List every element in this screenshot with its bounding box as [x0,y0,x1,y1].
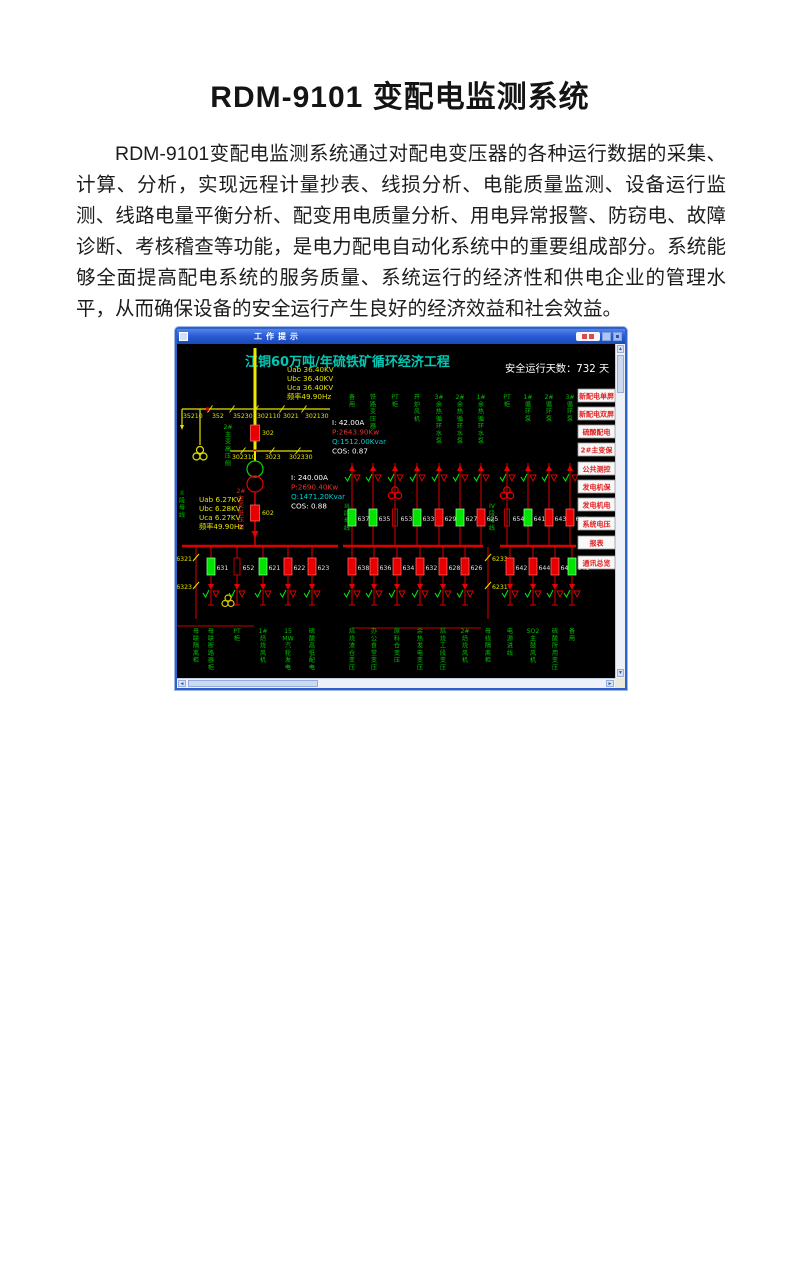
breaker-626[interactable] [461,558,469,575]
feeder-name-label: 焙 [462,634,468,642]
feeder-name-label: 1# [523,394,532,401]
status-check [366,474,372,481]
feeder-name-label: 联 [208,634,214,642]
arrow-up [546,465,552,471]
pt-symbol [388,492,394,498]
vscroll-thumb[interactable] [617,355,624,393]
feeder-name-label: 开 [414,394,420,401]
feeder-name-label: 3# [565,394,574,401]
hv-side-label: 侧 [225,460,231,468]
feeder-name-label: 余 [457,400,464,408]
lv-voltage: Uab 6.27KV [199,495,241,504]
switch-label: 302110 [257,413,281,420]
arrow-down [507,584,513,590]
status-check [474,474,480,481]
scada-diagram: 江铜60万吨/年硫铁矿循环经济工程安全运行天数：732 天35210352352… [177,344,615,678]
pt-symbol [200,453,207,460]
status-check [366,590,372,597]
hv-side-label: 主 [225,430,231,438]
feeder-name-label: 泵 [546,416,552,423]
status-check [457,590,463,597]
contact-symbol [512,591,518,597]
nav-button-label: 报表 [590,539,605,548]
status-check [345,474,351,481]
feeder-name-label: 压 [552,665,558,672]
feeder-name-label: 环 [546,409,552,416]
breaker-646[interactable] [551,558,559,575]
status-check [500,474,506,481]
switch-label: 35230 [233,413,253,420]
feeder-name-label: 源 [507,634,513,642]
feeder-name-label: 办 [371,627,377,635]
hv-side-label: 高 [225,445,231,453]
feeder-name-label: 风 [462,650,468,657]
arrow-up [414,465,420,471]
feeder-name-label: 循 [546,400,552,408]
safe-days-counter: 安全运行天数：732 天 [505,362,609,375]
feeder-name-label: 仓 [349,649,355,657]
feeder-name-label: 料 [394,634,400,642]
status-check [502,590,508,597]
contact-symbol [290,591,296,597]
feeder-name-label: 发 [285,656,291,664]
breaker-632[interactable] [416,558,424,575]
feeder-name-label: 备 [569,627,576,635]
scroll-up-button[interactable]: ▲ [617,345,624,353]
breaker-num: 302 [262,430,274,437]
feeder-name-label: 仓 [394,642,400,650]
pt-symbol [395,492,401,498]
feeder-name-label: 用 [552,650,558,657]
switch-label: 3023 [265,454,281,461]
arrow-down [260,584,266,590]
breaker-629[interactable] [435,509,443,526]
breaker-644[interactable] [529,558,537,575]
titlebar-menu-button[interactable] [576,332,600,341]
contact-symbol [441,475,447,481]
feeder-name-label: 柜 [234,634,240,642]
breaker-302[interactable] [251,425,260,441]
breaker-num: 637 [358,516,370,523]
arrow-up [349,465,355,471]
feeder-name-label: 压 [440,665,446,672]
feeder-name-label: 酸 [309,634,315,642]
feeder-name-label: 热 [457,408,464,416]
feeder-name-label: 风 [530,650,536,657]
document-title: RDM-9101 变配电监测系统 [0,72,800,116]
breaker-642[interactable] [506,558,514,575]
switch-label: 302310 [232,454,256,461]
nav-button-label: 硫酸配电 [583,428,611,437]
feeder-name-label: 配 [309,657,315,664]
arrow-down [552,584,558,590]
hv-side-label: 变 [225,438,231,446]
feeder-name-label: 水 [457,430,464,438]
feeder-name-label: 变 [370,408,376,416]
status-check [388,474,394,481]
breaker-638[interactable] [348,558,356,575]
breaker-621[interactable] [259,558,267,575]
status-check [521,474,527,481]
lv-measurement: I: 240.00A [291,473,328,482]
breaker-631[interactable] [207,558,215,575]
feeder-name-label: 所 [552,642,558,650]
nav-button-label: 发电机电 [582,501,611,510]
status-check [563,474,569,481]
breaker-627[interactable] [456,509,464,526]
feeder-name-label: 母 [193,628,199,635]
status-check [412,590,418,597]
feeder-name-label: 环 [478,423,484,430]
status-check [432,474,438,481]
breaker-633[interactable] [413,509,421,526]
feeder-name-label: 热 [436,408,443,416]
feeder-name-label: 烧 [440,634,446,642]
breaker-634[interactable] [393,558,401,575]
document-paragraph: RDM-9101变配电监测系统通过对配电变压器的各种运行数据的采集、计算、分析，… [76,139,726,325]
feeder-name-label: 电 [417,649,423,657]
feeder-name-label: 变 [417,656,423,664]
feeder-name-label: 硫 [552,627,558,635]
arrow-down [569,584,575,590]
status-check [344,590,350,597]
breaker-636[interactable] [370,558,378,575]
arrow-up [436,465,442,471]
status-check [203,590,209,597]
close-button[interactable] [613,332,622,341]
status-check [453,474,459,481]
contact-symbol [551,475,557,481]
feeder-name-label: 环 [525,409,531,416]
status-check [410,474,416,481]
feeder-name-label: 主 [530,634,536,642]
window-icon[interactable] [179,332,188,341]
feeder-name-label: 发 [417,642,423,650]
feeder-name-label: 机 [260,656,267,664]
lv-measurement: Q:1471.20Kvar [291,492,345,501]
bus-name-label: IV [489,503,496,510]
breaker-num: 633 [423,516,435,523]
hv-measurement: COS: 0.87 [332,447,368,456]
bus-name-label: 段 [179,496,185,504]
feeder-name-label: SO2 [527,628,540,635]
lv-measurement: COS: 0.88 [291,502,327,511]
feeder-name-label: 进 [507,642,513,650]
breaker-num: 627 [466,516,478,523]
breaker-num: 632 [426,565,438,572]
contact-symbol [375,475,381,481]
breaker-num: 641 [534,516,546,523]
breaker-637[interactable] [348,509,356,526]
nav-button-label: 系统电压 [583,520,611,529]
feeder-name-label: 压 [370,416,376,423]
feeder-name-label: 联 [193,634,199,642]
feeder-name-label: 断 [208,642,214,650]
contact-symbol [376,591,382,597]
breaker-643[interactable] [545,509,553,526]
status-check [304,590,310,597]
feeder-name-label: 环 [567,409,573,416]
scroll-left-button[interactable]: ◄ [178,680,186,687]
feeder-name-label: 压 [371,665,377,672]
feeder-name-label: 泵 [525,416,531,423]
hv-voltage: Uab 36.40KV [287,365,334,374]
scada-client-area: 江铜60万吨/年硫铁矿循环经济工程安全运行天数：732 天35210352352… [177,344,615,678]
disconnect-label: 6321 [177,556,192,563]
bus-name-label: 线 [489,524,495,532]
feeder-name-label: 电 [507,627,513,635]
pt-symbol [507,492,513,498]
feeder-name-label: 1# [258,628,267,635]
arrow-up [392,465,398,471]
arrow [252,531,259,538]
arrow-up [504,465,510,471]
feeder-name-label: PT [503,394,511,401]
breaker-num: 636 [380,565,392,572]
feeder-name-label: 压 [349,665,355,672]
contact-symbol [535,591,541,597]
hv-measurement: I: 42.00A [332,418,364,427]
hscroll-thumb[interactable] [188,680,318,687]
feeder-name-label: 炉 [414,400,420,408]
breaker-622[interactable] [284,558,292,575]
arrow-down [440,584,446,590]
breaker-num: 602 [262,510,274,517]
feeder-name-label: 机 [462,656,469,664]
contact-symbol [397,475,403,481]
breaker-num: 623 [318,565,330,572]
lv-voltage: 频率49.90Hz [199,522,243,531]
lv-measurement: P:2690.40Kw [291,483,338,492]
arrow-down [349,584,355,590]
hv-voltage: Ubc 36.40KV [287,374,333,383]
feeder-name-label: 烧 [462,642,468,650]
contact-symbol [530,475,536,481]
feeder-name-label: MW [282,635,293,642]
contact-symbol [574,591,580,597]
breaker-648[interactable] [568,558,576,575]
contact-symbol [462,475,468,481]
nav-button-label: 发电机保 [582,483,612,492]
switch-label: 302330 [289,454,313,461]
arrow-down [394,584,400,590]
feeder-name-label: 段 [440,649,446,657]
nav-button-label: 新配电双屏 [579,410,614,419]
feeder-name-label: 母 [208,628,214,635]
pt-symbol [500,492,506,498]
feeder-name-label: 电 [285,664,291,672]
feeder-name-label: 路 [208,649,215,657]
disconnect-label: 6233 [492,556,508,563]
contact-symbol [265,591,271,597]
bus-name-label: II [180,490,184,497]
feeder-name-label: 热 [417,634,424,642]
breaker-635[interactable] [369,509,377,526]
arrow-down [417,584,423,590]
disconnect-label: 6231 [492,584,508,591]
status-check [389,590,395,597]
breaker-641[interactable] [524,509,532,526]
feeder-name-label: 原 [394,628,400,635]
pt-symbol [228,601,234,607]
feeder-name-label: 高 [309,642,315,650]
feeder-name-label: 变 [552,656,558,664]
breaker-num: 621 [269,565,281,572]
feeder-name-label: 焙 [440,627,446,635]
feeder-name-label: 变 [440,656,446,664]
feeder-name-label: 风 [260,650,266,657]
breaker-623[interactable] [308,558,316,575]
feeder-name-label: 电 [309,664,315,672]
pt-symbol [222,601,228,607]
arrow-up [457,465,463,471]
breaker-num: 622 [294,565,306,572]
feeder-name-label: 烧 [260,642,266,650]
contact-symbol [399,591,405,597]
nav-button-label: 新配电单屏 [579,392,614,401]
lv-voltage: Ubc 6.28KV [199,504,241,513]
feeder-name-label: 余 [436,400,443,408]
hv-voltage: Uca 36.40KV [287,383,333,392]
feeder-name-label: 循 [478,415,484,423]
contact-symbol [557,591,563,597]
page: { "document": { "title": "RDM-9101 变配电监测… [0,0,800,1279]
breaker-num: 631 [217,565,229,572]
arrow-up [567,465,573,471]
breaker-num: 643 [555,516,567,523]
feeder-name-label: 鼓 [530,642,536,650]
feeder-name-label: 备 [349,393,356,401]
scroll-down-button[interactable]: ▼ [617,669,624,677]
feeder-name-label: 焙 [349,627,355,635]
feeder-name-label: 烧 [349,634,355,642]
breaker-num: 629 [445,516,457,523]
nav-button-label: 2#主变保 [581,446,614,455]
scroll-right-button[interactable]: ► [606,680,614,687]
feeder-name-label: 环 [457,423,463,430]
contact-symbol [509,475,515,481]
feeder-name-label: 变 [371,656,377,664]
feeder-name-label: 2# [455,394,464,401]
breaker-num: 635 [379,516,391,523]
status-check [525,590,531,597]
feeder-name-label: 焙 [260,634,266,642]
feeder-name-label: 15 [284,628,292,635]
status-check [564,590,570,597]
feeder-name-label: 变 [394,649,400,657]
nav-button-label: 通讯总览 [583,559,611,568]
breaker-652[interactable] [234,558,240,575]
feeder-name-label: 离 [485,649,491,657]
feeder-name-label: 食 [371,642,378,650]
feeder-name-label: 热 [478,408,485,416]
feeder-name-label: PT [391,394,399,401]
contact-symbol [354,591,360,597]
feeder-name-label: 轮 [285,649,291,657]
hv-side-label: 压 [225,453,231,460]
app-window: 工作提示 江铜60万吨/年硫铁矿循环经济工程安全运行天数：732 天352103… [175,327,627,690]
feeder-name-label: 用 [349,401,355,408]
contact-symbol [354,475,360,481]
window-title: 工作提示 [254,331,302,342]
breaker-645[interactable] [566,509,574,526]
window-titlebar: 工作提示 [177,329,625,344]
status-check [255,590,261,597]
breaker-num: 626 [471,565,483,572]
feeder-name-label: 线 [485,634,491,642]
breaker-num: 628 [449,565,461,572]
breaker-num: 642 [516,565,528,572]
feeder-name-label: 柜 [208,664,214,672]
contact-symbol [572,475,578,481]
breaker-num: 625 [487,516,499,523]
transformer-hv-winding [247,461,263,477]
feeder-name-label: 泵 [436,438,442,445]
horizontal-scrollbar[interactable]: ◄ ► [177,678,615,688]
feeder-name-label: 路 [370,400,377,408]
arrow-down [309,584,315,590]
arrow-down [462,584,468,590]
feeder-name-label: 机 [414,415,421,423]
contact-symbol [314,591,320,597]
feeder-name-label: 柜 [193,656,199,664]
feeder-name-label: 泵 [567,416,573,423]
feeder-name-label: 用 [569,635,575,642]
status-check [280,590,286,597]
feeder-name-label: 母 [485,628,491,635]
feeder-name-label: 线 [507,649,513,657]
feeder-name-label: 2# [460,628,469,635]
contact-symbol [483,475,489,481]
switch-label: 3021 [283,413,299,420]
breaker-602[interactable] [251,505,260,521]
pt-symbol [193,453,200,460]
arrow [180,425,184,430]
breaker-num: 654 [513,516,525,523]
arrow-down [234,584,240,590]
feeder-name-label: 堂 [371,649,377,657]
breaker-num: 653 [401,516,413,523]
breaker-num: 638 [358,565,370,572]
feeder-name-label: 柜 [392,400,398,408]
status-check [547,590,553,597]
transformer-lv-winding [247,476,263,492]
feeder-name-label: 风 [414,409,420,416]
breaker-625[interactable] [477,509,485,526]
contact-symbol [422,591,428,597]
feeder-name-label: 公 [371,635,377,642]
feeder-name-label: 余 [417,627,424,635]
breaker-num: 634 [403,565,415,572]
feeder-name-label: 柜 [504,400,510,408]
vertical-scrollbar[interactable]: ▲ ▼ [615,344,625,678]
feeder-name-label: 泵 [457,438,463,445]
arrow-down [208,584,214,590]
arrow-up [370,465,376,471]
minimize-button[interactable] [602,332,611,341]
disconnect-label: 6323 [177,584,192,591]
bus-name-label: 母 [179,505,185,512]
feeder-name-label: 变 [349,656,355,664]
contact-symbol [239,591,245,597]
window-controls [576,332,622,341]
feeder-name-label: 柜 [485,656,491,664]
contact-symbol [213,591,219,597]
breaker-628[interactable] [439,558,447,575]
feeder-name-label: PT [233,628,241,635]
feeder-name-label: 压 [394,657,400,664]
feeder-name-label: 酸 [552,634,558,642]
